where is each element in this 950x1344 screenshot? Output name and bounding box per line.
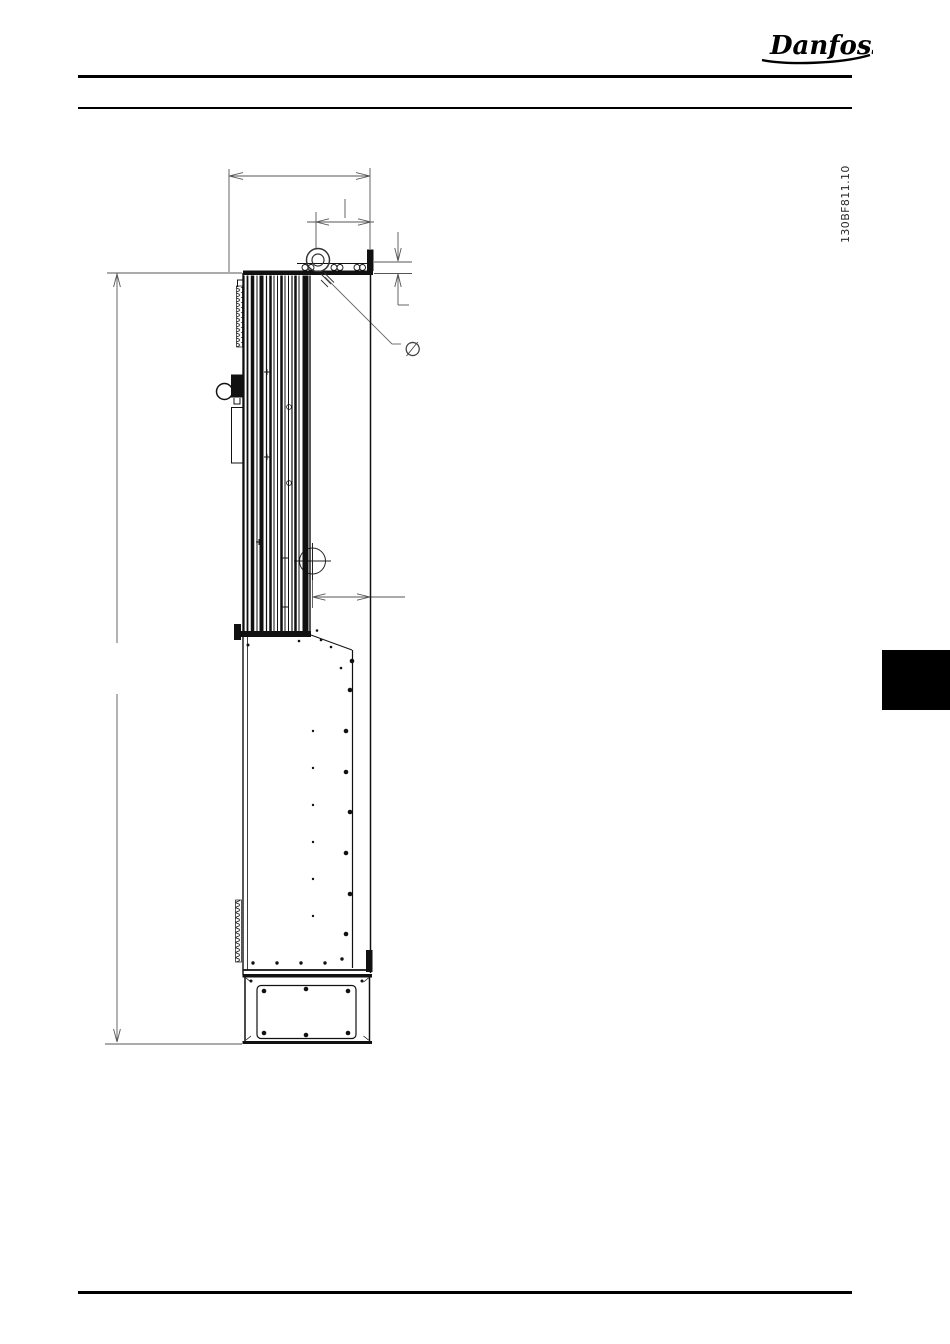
- dimension-top-width: [229, 168, 370, 272]
- base-plate-screws: [250, 980, 364, 1038]
- dimension-gland-depth: [313, 569, 406, 608]
- drive-unit-side-view: [217, 249, 374, 1045]
- base-gland-plate: [257, 986, 356, 1039]
- side-connector-block: [231, 375, 243, 398]
- diameter-leader-line: [325, 277, 401, 344]
- technical-drawing: ∅: [0, 0, 950, 1344]
- crosshair-marker: [294, 543, 331, 580]
- diameter-symbol: ∅: [404, 337, 421, 361]
- dimension-top-plate-height: [374, 232, 412, 305]
- dimension-eyebolt-offset: [307, 199, 374, 248]
- document-page: Danfoss 130BF811.10: [0, 0, 950, 1344]
- left-edge-details: [217, 273, 248, 975]
- side-connector-ring: [217, 384, 233, 400]
- dimension-overall-height: [105, 273, 242, 1044]
- cabinet-latch: [366, 950, 373, 972]
- heatsink-fins: [244, 276, 310, 634]
- gland-serration-upper: [237, 286, 243, 347]
- dimension-annotations: [105, 168, 412, 1044]
- rivet-dots: [247, 629, 355, 965]
- gland-serration-lower: [236, 900, 242, 962]
- side-bracket-outline: [232, 408, 244, 464]
- base-pedestal: [243, 974, 373, 1044]
